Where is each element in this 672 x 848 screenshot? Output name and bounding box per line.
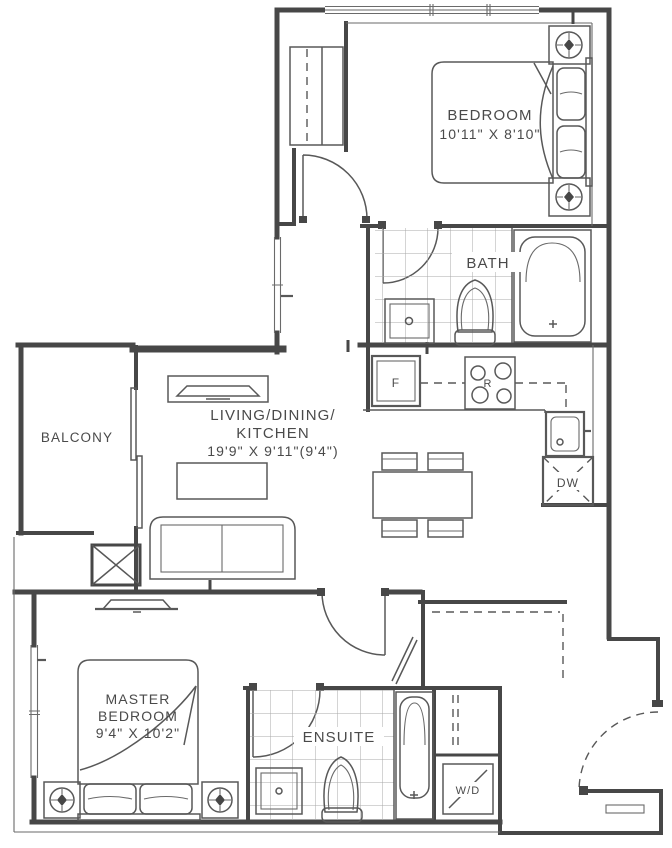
master-dimensions: 9'4" X 10'2"	[96, 725, 181, 741]
headboard	[586, 58, 592, 186]
fridge-icon: F	[372, 356, 420, 406]
bedroom-window	[325, 3, 539, 17]
range-label: R	[483, 378, 492, 390]
master-window	[29, 645, 46, 778]
balcony-label: BALCONY	[41, 430, 113, 445]
dishwasher-icon: DW	[543, 457, 593, 505]
living-dining: LIVING/DINING/ KITCHEN 19'9" X 9'11"(9'4…	[150, 376, 472, 579]
ensuite-room: ENSUITE	[250, 690, 433, 822]
bedroom-furniture: BEDROOM 10'11" X 8'10"	[432, 26, 592, 216]
floor-plan-drawing: BEDROOM 10'11" X 8'10" BATH F	[0, 0, 672, 848]
chair-icon	[428, 520, 463, 537]
ensuite-tile-floor	[250, 690, 394, 820]
wall-hall	[277, 150, 294, 224]
living-label-line1: LIVING/DINING/	[210, 407, 335, 424]
bedroom-door-swing-icon	[299, 155, 370, 223]
chair-icon	[428, 453, 463, 470]
dressing-closet-door-icon	[392, 637, 417, 684]
ensuite-label: ENSUITE	[303, 729, 376, 746]
nightstand-lamp-icon	[549, 178, 590, 216]
balcony-sliding-door-icon	[131, 388, 142, 528]
bath-label: BATH	[466, 255, 509, 272]
nightstand-lamp-icon	[44, 782, 80, 818]
kitchen: F R DW	[363, 356, 593, 505]
range-icon: R	[465, 357, 515, 409]
master-label-line1: MASTER	[106, 691, 171, 707]
nightstand-lamp-icon	[202, 782, 238, 818]
entry-threshold	[606, 805, 644, 813]
wall-entry-closet	[420, 592, 565, 688]
washer-dryer-icon: W/D	[443, 764, 493, 814]
floor-plan: BEDROOM 10'11" X 8'10" BATH F	[0, 0, 672, 848]
kitchen-counter-edge	[363, 410, 545, 413]
bedroom-closet-icon	[290, 47, 343, 145]
dishwasher-label: DW	[557, 476, 579, 490]
closet-shelving	[307, 49, 566, 750]
master-label-line2: BEDROOM	[98, 708, 178, 724]
pillow	[84, 784, 136, 814]
bath-room: BATH	[375, 228, 591, 345]
dining-table-icon	[373, 453, 472, 537]
entry-door-swing-icon	[579, 700, 663, 813]
bedroom-dimensions: 10'11" X 8'10"	[439, 126, 540, 142]
master-tv-icon	[95, 600, 178, 612]
entry-closet-rod-icon	[432, 612, 563, 680]
headboard	[78, 814, 200, 820]
washer-dryer-label: W/D	[456, 785, 481, 797]
living-dimensions: 19'9" X 9'11"(9'4")	[207, 443, 339, 459]
bedroom-label: BEDROOM	[447, 107, 532, 124]
pillow	[140, 784, 192, 814]
wall-corridor-step	[609, 639, 658, 700]
master-bedroom: MASTER BEDROOM 9'4" X 10'2"	[44, 600, 238, 820]
coffee-table-icon	[177, 463, 267, 499]
wall-entry-vestibule	[500, 791, 661, 833]
kitchen-sink-icon	[546, 412, 591, 456]
chair-icon	[382, 520, 417, 537]
wd-closet-rod-icon	[453, 695, 458, 750]
nightstand-lamp-icon	[549, 26, 590, 64]
bathtub-icon	[514, 230, 591, 342]
fridge-label: F	[392, 376, 400, 390]
ensuite-bathtub-icon	[396, 692, 433, 819]
chair-icon	[382, 453, 417, 470]
hall-window	[272, 237, 293, 333]
tv-console-icon	[168, 376, 268, 402]
master-door-swing-icon	[317, 588, 389, 655]
living-label-line2: KITCHEN	[236, 425, 310, 442]
bath-tile-floor	[375, 228, 512, 343]
kitchen-upper-cabinet-dashes	[420, 383, 566, 411]
sofa-icon	[150, 517, 295, 579]
column-icon	[92, 545, 140, 585]
